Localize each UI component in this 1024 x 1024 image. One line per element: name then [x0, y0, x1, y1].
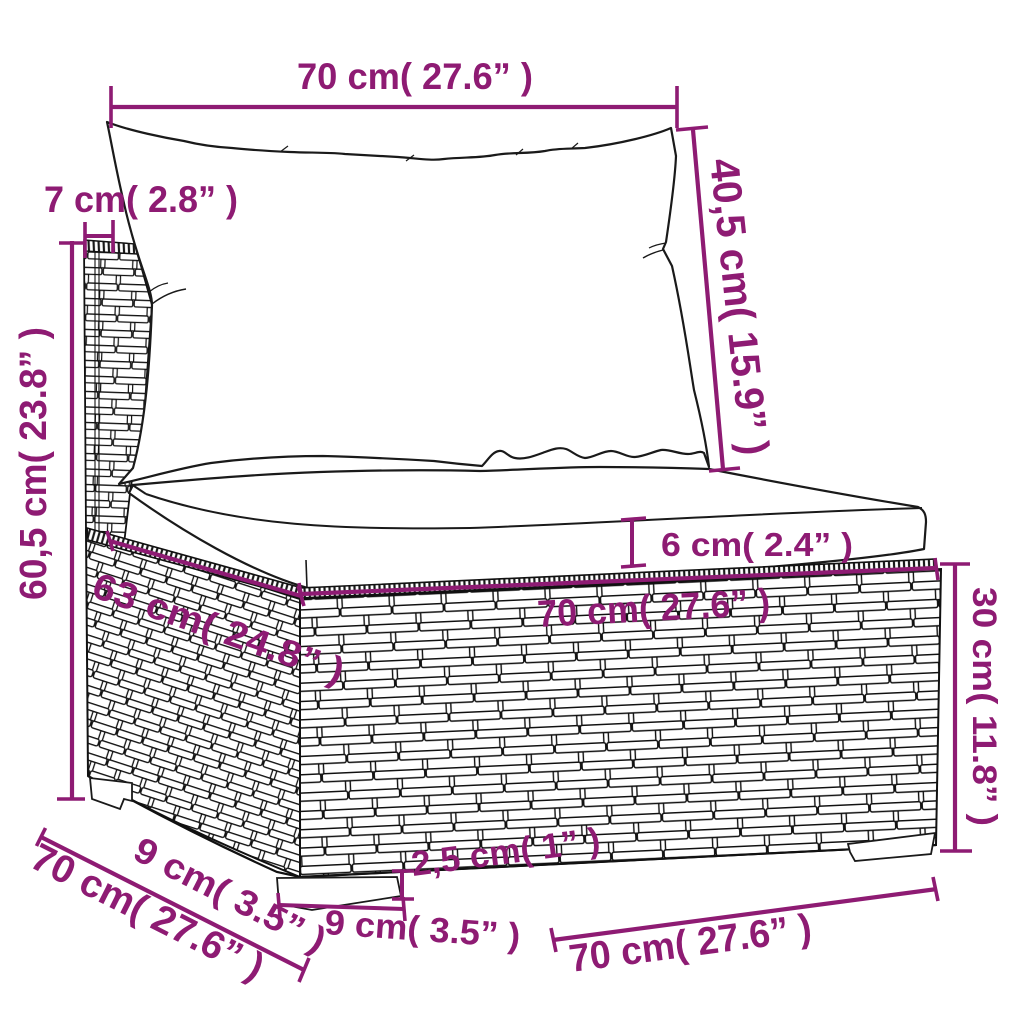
svg-text:40,5 cm( 15.9” ): 40,5 cm( 15.9” ) [701, 156, 778, 457]
svg-text:9 cm( 3.5” ): 9 cm( 3.5” ) [323, 903, 521, 956]
svg-text:6 cm( 2.4” ): 6 cm( 2.4” ) [661, 526, 853, 563]
svg-text:70 cm( 27.6” ): 70 cm( 27.6” ) [567, 906, 815, 980]
svg-text:30 cm( 11.8” ): 30 cm( 11.8” ) [965, 587, 1003, 826]
svg-text:70 cm( 27.6” ): 70 cm( 27.6” ) [297, 56, 533, 97]
svg-text:60,5 cm( 23.8” ): 60,5 cm( 23.8” ) [13, 327, 55, 600]
svg-text:7 cm( 2.8” ): 7 cm( 2.8” ) [44, 179, 238, 220]
